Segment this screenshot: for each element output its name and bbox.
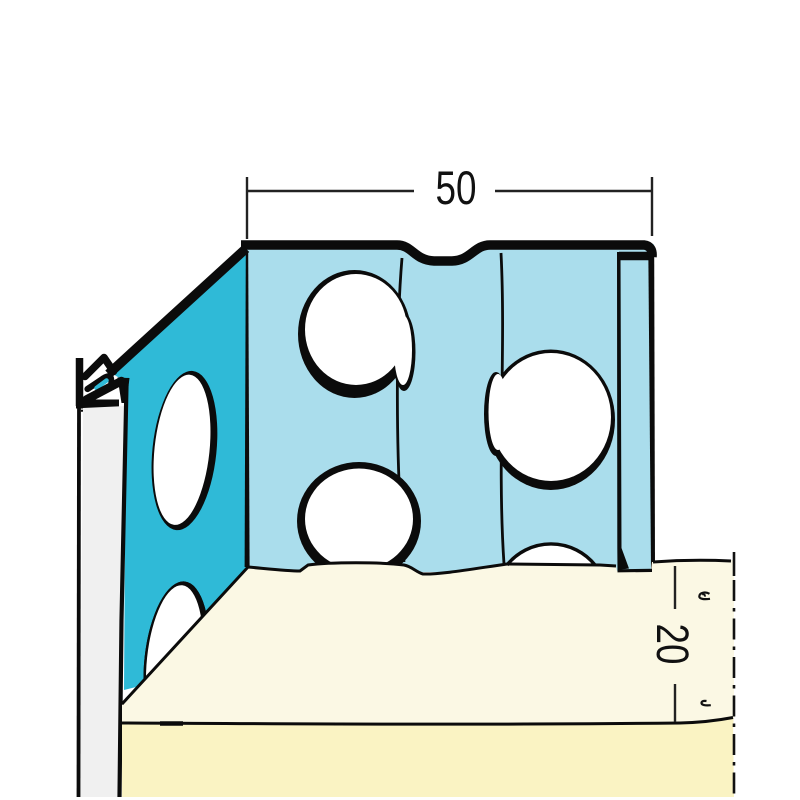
svg-text:50: 50 (436, 162, 477, 215)
svg-text:20: 20 (647, 624, 698, 665)
